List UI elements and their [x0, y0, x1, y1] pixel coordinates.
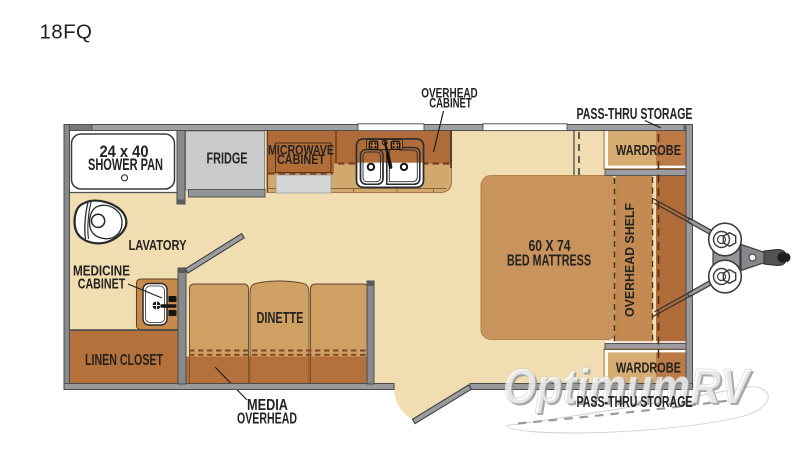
svg-text:LINEN CLOSET: LINEN CLOSET	[85, 352, 163, 369]
svg-text:18FQ: 18FQ	[40, 21, 93, 44]
svg-text:LAVATORY: LAVATORY	[129, 238, 187, 254]
svg-text:PASS-THRU STORAGE: PASS-THRU STORAGE	[577, 106, 693, 123]
svg-text:OVERHEAD: OVERHEAD	[237, 411, 297, 428]
svg-text:SHOWER PAN: SHOWER PAN	[88, 156, 163, 174]
svg-text:OVERHEAD SHELF: OVERHEAD SHELF	[622, 203, 637, 317]
svg-text:WARDROBE: WARDROBE	[616, 360, 681, 377]
svg-text:BED MATTRESS: BED MATTRESS	[507, 253, 591, 270]
svg-text:PASS-THRU STORAGE: PASS-THRU STORAGE	[577, 394, 693, 411]
svg-text:FRIDGE: FRIDGE	[207, 151, 248, 168]
svg-text:CABINET: CABINET	[277, 152, 326, 167]
svg-text:CABINET: CABINET	[78, 276, 126, 293]
svg-text:WARDROBE: WARDROBE	[616, 142, 681, 159]
svg-text:DINETTE: DINETTE	[257, 310, 304, 327]
svg-text:CABINET: CABINET	[429, 95, 472, 111]
